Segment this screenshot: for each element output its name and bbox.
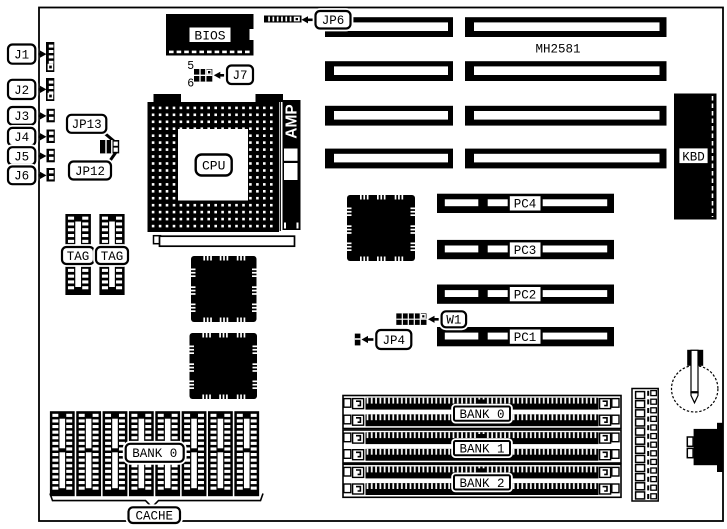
svg-text:PC4: PC4 [514, 198, 537, 212]
svg-text:J4: J4 [14, 131, 29, 145]
svg-text:JP6: JP6 [322, 14, 345, 28]
svg-text:TAG: TAG [67, 250, 90, 264]
svg-text:J6: J6 [14, 170, 29, 184]
svg-text:J7: J7 [232, 69, 247, 83]
svg-text:TAG: TAG [101, 250, 124, 264]
svg-text:5: 5 [187, 60, 194, 73]
svg-text:BANK 2: BANK 2 [459, 477, 504, 491]
svg-text:BANK 1: BANK 1 [459, 442, 504, 456]
svg-text:J3: J3 [14, 110, 29, 124]
svg-text:BANK 0: BANK 0 [132, 447, 177, 461]
svg-text:PC3: PC3 [514, 244, 537, 258]
svg-text:JP13: JP13 [72, 118, 102, 132]
svg-text:MH2581: MH2581 [536, 43, 581, 57]
svg-text:PC2: PC2 [514, 289, 537, 303]
svg-text:BIOS: BIOS [194, 28, 225, 43]
svg-text:J5: J5 [14, 150, 29, 164]
svg-text:BANK 0: BANK 0 [459, 408, 504, 422]
svg-text:6: 6 [187, 78, 194, 91]
svg-text:KBD: KBD [682, 151, 705, 165]
svg-text:CPU: CPU [202, 159, 225, 174]
svg-text:JP12: JP12 [75, 165, 105, 179]
svg-text:W1: W1 [446, 314, 461, 328]
svg-text:J2: J2 [14, 84, 29, 98]
svg-text:CACHE: CACHE [135, 510, 173, 524]
svg-text:JP4: JP4 [383, 334, 406, 348]
svg-text:PC1: PC1 [514, 331, 537, 345]
svg-text:AMP: AMP [284, 104, 301, 138]
svg-text:J1: J1 [14, 48, 29, 62]
